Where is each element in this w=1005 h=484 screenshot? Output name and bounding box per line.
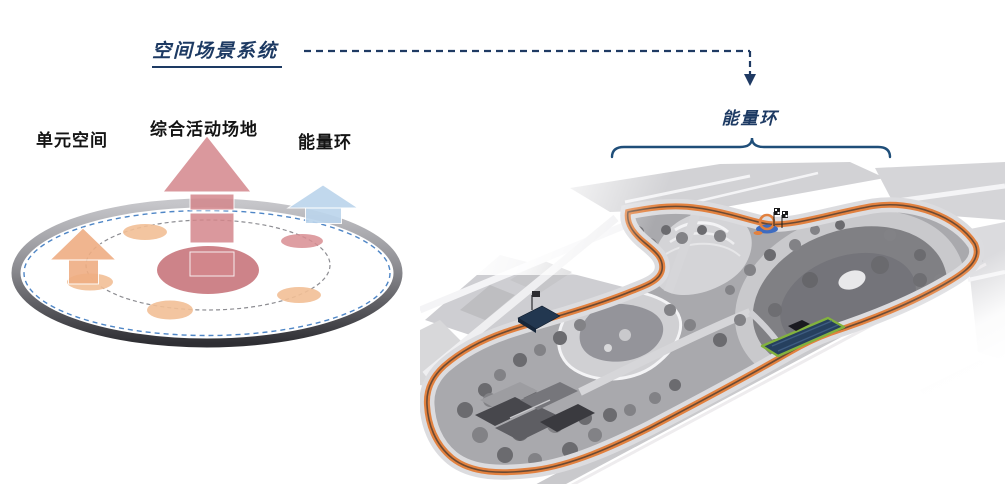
- site-plan-map: [420, 160, 1005, 484]
- arrow-head-icon: [744, 74, 756, 86]
- fade-top-left: [420, 160, 765, 275]
- slide-canvas: 空间场景系统 单元空间 综合活动场地 能量环: [0, 0, 1005, 484]
- unit-space-node-pink: [281, 234, 323, 248]
- page-title: 空间场景系统: [152, 36, 282, 68]
- callout-brace: [600, 132, 900, 162]
- map-callout-label: 能量环: [660, 104, 840, 129]
- concept-ring-diagram: [0, 100, 420, 350]
- dashed-connector-arrow: [296, 38, 766, 90]
